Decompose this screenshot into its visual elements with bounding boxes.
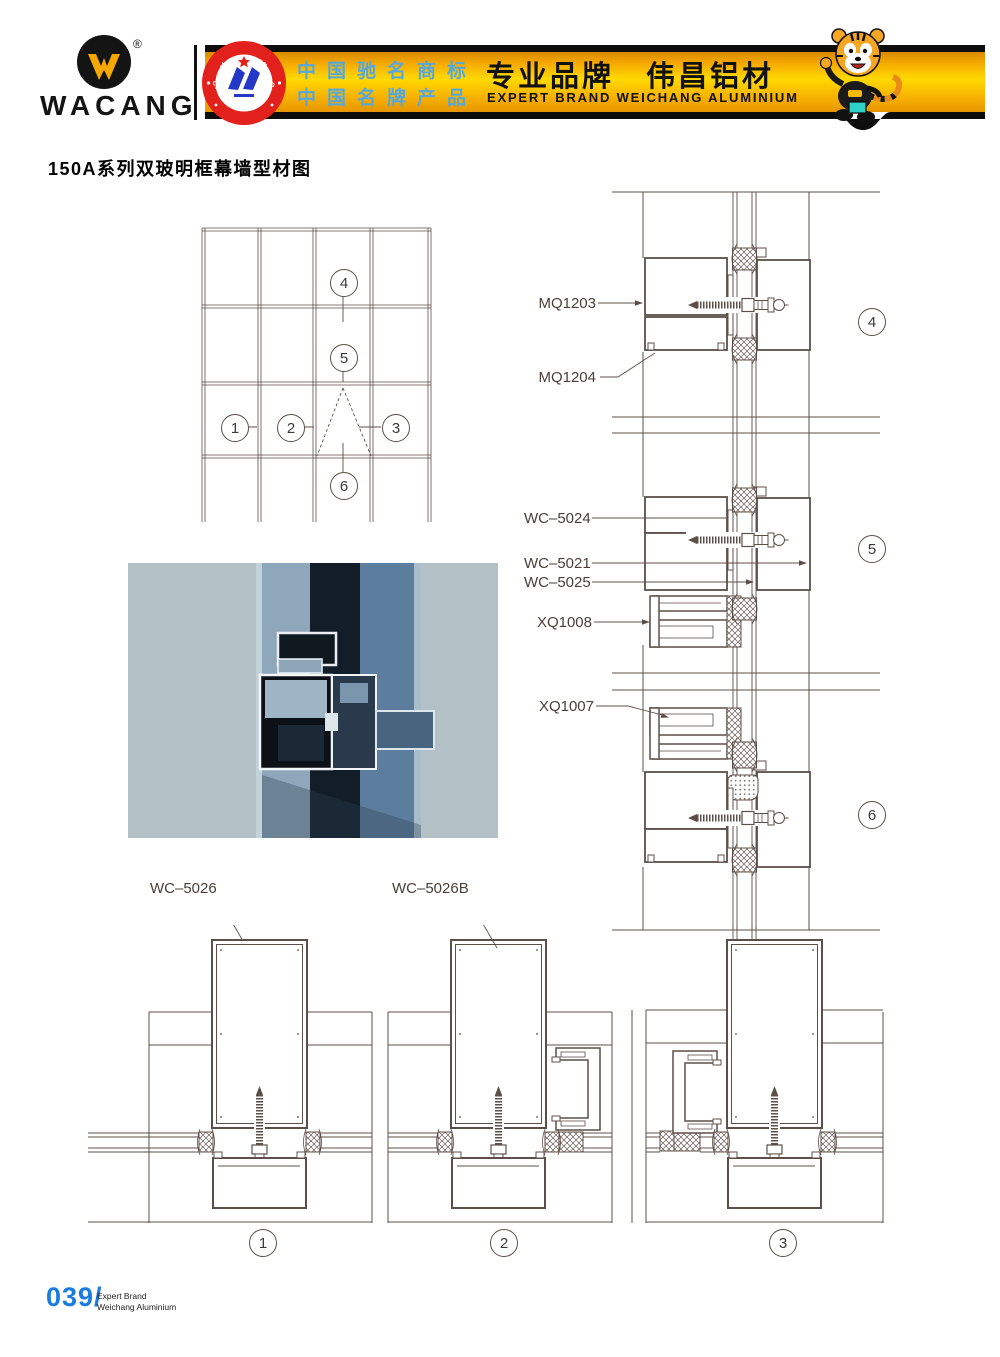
elevation-callout-3: 3 bbox=[382, 414, 410, 442]
section-2-mullion bbox=[437, 940, 561, 1208]
grid-lines bbox=[202, 228, 431, 522]
banner-cn-line2: 中国名牌产品 bbox=[297, 83, 477, 110]
part-label-wc5026b: WC–5026B bbox=[392, 880, 469, 897]
elevation-callout-4: 4 bbox=[330, 269, 358, 297]
section-callout-1: 1 bbox=[249, 1229, 277, 1257]
elevation-grid-drawing bbox=[195, 222, 440, 522]
wacang-logo-icon bbox=[74, 32, 134, 92]
part-label-wc5025: WC–5025 bbox=[524, 574, 590, 591]
footer-text: Expert Brand Weichang Aluminium bbox=[97, 1291, 176, 1313]
part-label-wc5024: WC–5024 bbox=[524, 510, 590, 527]
elevation-callout-2: 2 bbox=[277, 414, 305, 442]
banner-brand-en: EXPERT BRAND WEICHANG ALUMINIUM bbox=[487, 90, 799, 105]
page-number: 039/ bbox=[46, 1282, 103, 1313]
detail-callout-5: 5 bbox=[858, 535, 886, 563]
section-1-mullion bbox=[198, 940, 322, 1208]
detail-4-section bbox=[645, 244, 810, 364]
tiger-mascot-icon bbox=[806, 16, 908, 128]
detail-6-section bbox=[645, 708, 810, 876]
elevation-callout-6: 6 bbox=[330, 472, 358, 500]
vertical-sections-123-drawing bbox=[80, 925, 950, 1260]
callout-leaders bbox=[247, 295, 381, 472]
registered-mark: ® bbox=[133, 37, 142, 51]
header-divider bbox=[194, 45, 197, 120]
part-label-wc5026: WC–5026 bbox=[150, 880, 217, 897]
section-callout-3: 3 bbox=[769, 1229, 797, 1257]
detail-callout-6: 6 bbox=[858, 801, 886, 829]
china-top-brand-badge-icon: 中国名牌 CHINA TOP BRAND bbox=[200, 39, 288, 127]
page-title: 150A系列双玻明框幕墙型材图 bbox=[48, 155, 312, 181]
part-label-xq1008: XQ1008 bbox=[534, 614, 592, 631]
section-callout-2: 2 bbox=[490, 1229, 518, 1257]
banner-cn-line1: 中国驰名商标 bbox=[297, 56, 477, 83]
part-label-mq1203: MQ1203 bbox=[536, 295, 596, 312]
part-label-xq1007: XQ1007 bbox=[536, 698, 594, 715]
section-3-mullion bbox=[713, 940, 837, 1208]
catalog-page: ® WACANG 中国驰名商标 中国名牌产品 专业品牌 伟昌铝材 EXPERT … bbox=[0, 0, 1000, 1357]
detail-callout-4: 4 bbox=[858, 308, 886, 336]
footer-line2: Weichang Aluminium bbox=[97, 1302, 176, 1313]
detail-5-section bbox=[645, 484, 810, 647]
profile-render-image bbox=[128, 563, 498, 838]
part-label-mq1204: MQ1204 bbox=[536, 369, 596, 386]
part-label-wc5021: WC–5021 bbox=[524, 555, 590, 572]
logo-text: WACANG bbox=[40, 90, 198, 122]
section-label-leaders bbox=[147, 925, 497, 948]
footer-line1: Expert Brand bbox=[97, 1291, 176, 1302]
elevation-callout-5: 5 bbox=[330, 344, 358, 372]
banner-brand-cn: 专业品牌 伟昌铝材 bbox=[486, 53, 774, 95]
elevation-callout-1: 1 bbox=[221, 414, 249, 442]
